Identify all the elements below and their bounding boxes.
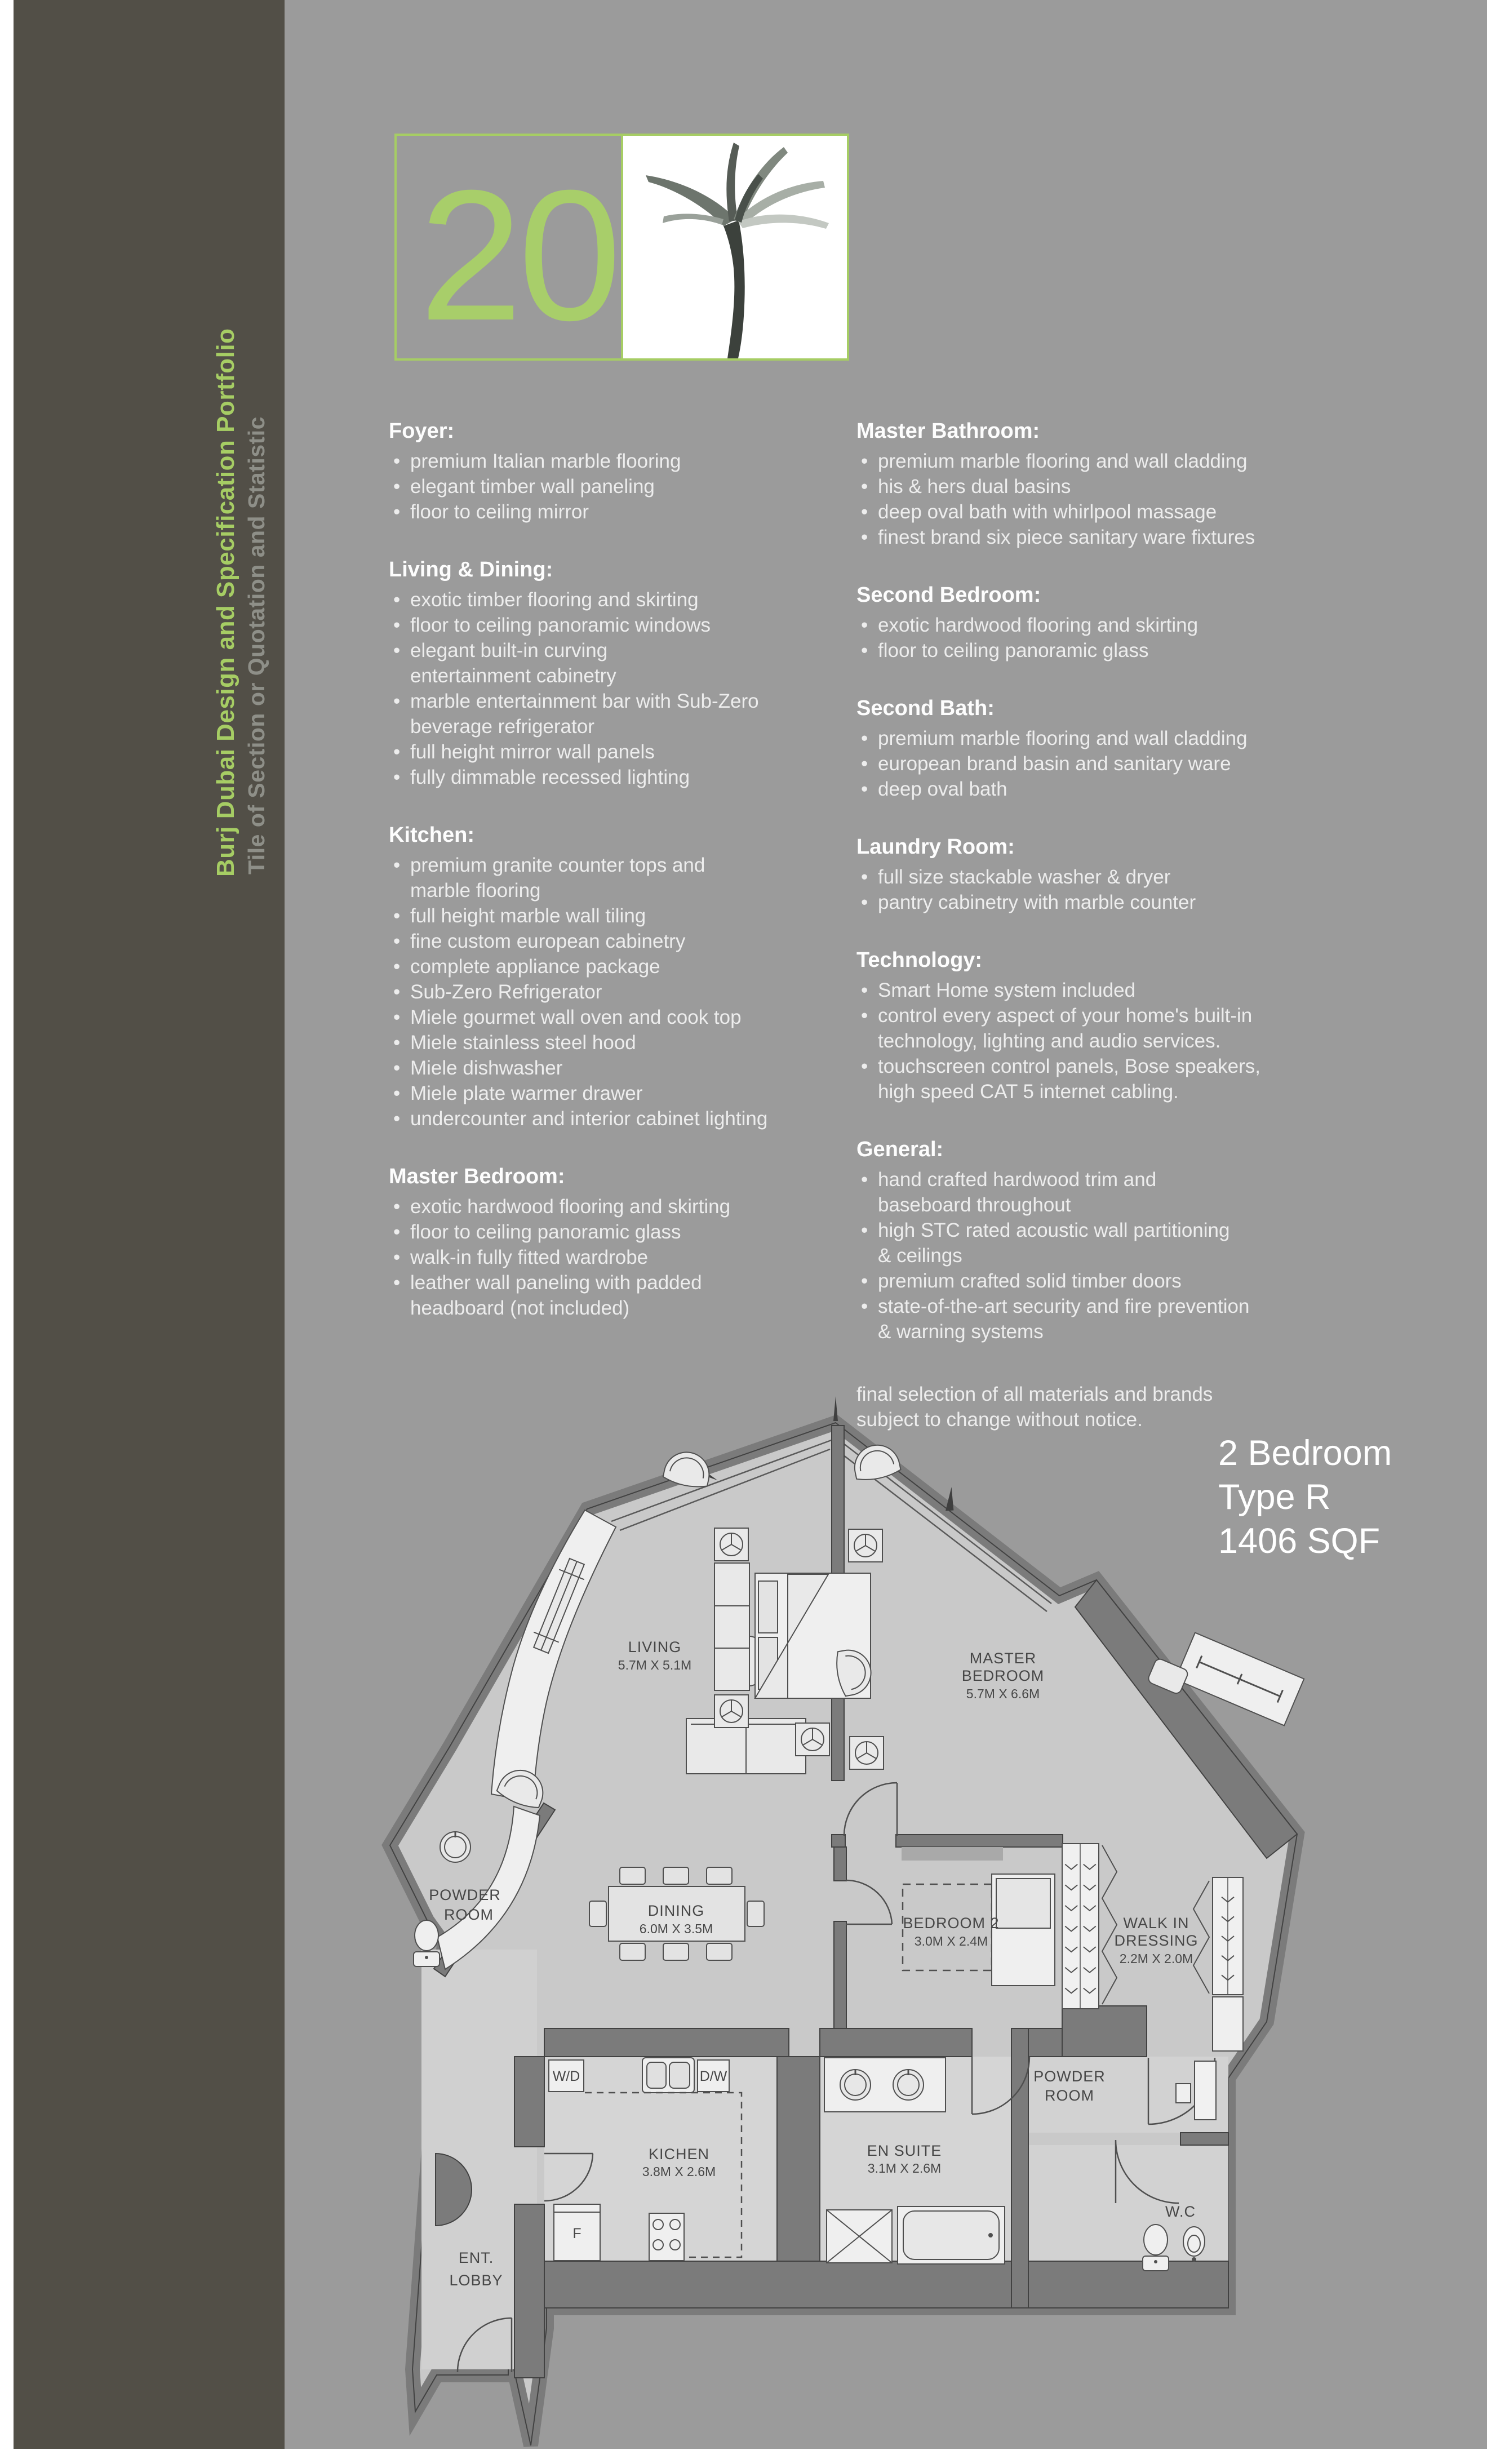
- spec-item: finest brand six piece sanitary ware fix…: [856, 525, 1302, 550]
- section-heading: Technology:: [856, 947, 1302, 973]
- section-laundry-room: Laundry Room: full size stackable washer…: [856, 834, 1302, 915]
- spec-item: fine custom european cabinetry: [389, 929, 834, 954]
- section-second-bath: Second Bath: premium marble flooring and…: [856, 695, 1302, 802]
- label-walkin-dims: 2.2M X 2.0M: [1120, 1951, 1193, 1966]
- section-heading: Laundry Room:: [856, 834, 1302, 860]
- floor-plan: LIVING 5.7M X 5.1M MASTER BEDROOM 5.7M X…: [361, 1386, 1352, 2464]
- label-lobby-1: ENT.: [459, 2249, 494, 2266]
- spec-item: hand crafted hardwood trim and baseboard…: [856, 1167, 1302, 1218]
- spec-item: floor to ceiling mirror: [389, 499, 834, 525]
- label-walkin-2: DRESSING: [1114, 1932, 1198, 1949]
- spec-item: european brand basin and sanitary ware: [856, 751, 1302, 776]
- label-bedroom2-dims: 3.0M X 2.4M: [915, 1934, 988, 1948]
- label-master-1: MASTER: [970, 1650, 1037, 1667]
- label-dining-dims: 6.0M X 3.5M: [640, 1921, 713, 1936]
- label-walkin-1: WALK IN: [1123, 1915, 1189, 1932]
- page-number-cell: 20: [397, 136, 623, 358]
- section-general: General: hand crafted hardwood trim and …: [856, 1136, 1302, 1344]
- spec-item: full height mirror wall panels: [389, 739, 834, 765]
- label-wc: W.C: [1165, 2203, 1196, 2220]
- spec-item: marble entertainment bar with Sub-Zero b…: [389, 689, 834, 739]
- spec-item: undercounter and interior cabinet lighti…: [389, 1106, 834, 1131]
- section-master-bathroom: Master Bathroom: premium marble flooring…: [856, 418, 1302, 550]
- section-heading: Master Bathroom:: [856, 418, 1302, 444]
- spec-item: his & hers dual basins: [856, 474, 1302, 499]
- page-number-box: 20: [394, 134, 849, 361]
- page-number: 20: [419, 162, 617, 348]
- label-powder-right-2: ROOM: [1045, 2087, 1094, 2104]
- spec-item: premium granite counter tops and marble …: [389, 853, 834, 903]
- section-kitchen: Kitchen: premium granite counter tops an…: [389, 822, 834, 1131]
- spec-item: premium Italian marble flooring: [389, 449, 834, 474]
- spec-item: Smart Home system included: [856, 978, 1302, 1003]
- section-heading: Master Bedroom:: [389, 1164, 834, 1189]
- section-master-bedroom: Master Bedroom: exotic hardwood flooring…: [389, 1164, 834, 1321]
- hatched-strip: [902, 1847, 1003, 1861]
- spec-item: full size stackable washer & dryer: [856, 864, 1302, 890]
- section-second-bedroom: Second Bedroom: exotic hardwood flooring…: [856, 582, 1302, 663]
- label-ensuite: EN SUITE: [867, 2142, 942, 2159]
- section-technology: Technology: Smart Home system included c…: [856, 947, 1302, 1104]
- spec-item: elegant built-in curving entertainment c…: [389, 638, 834, 689]
- section-heading: Second Bath:: [856, 695, 1302, 721]
- label-powder-left-1: POWDER: [429, 1886, 501, 1903]
- label-living: LIVING: [628, 1639, 682, 1655]
- flower-photo: [623, 136, 847, 358]
- label-living-dims: 5.7M X 5.1M: [618, 1658, 691, 1672]
- section-heading: Second Bedroom:: [856, 582, 1302, 608]
- label-kitchen: KICHEN: [649, 2146, 709, 2163]
- spec-item: Miele plate warmer drawer: [389, 1081, 834, 1106]
- spec-item: leather wall paneling with padded headbo…: [389, 1270, 834, 1321]
- spec-item: exotic hardwood flooring and skirting: [389, 1194, 834, 1219]
- spec-item: Sub-Zero Refrigerator: [389, 979, 834, 1005]
- label-lobby-2: LOBBY: [449, 2272, 503, 2289]
- label-powder-right-1: POWDER: [1033, 2068, 1106, 2085]
- section-heading: Living & Dining:: [389, 557, 834, 583]
- spec-item: deep oval bath with whirlpool massage: [856, 499, 1302, 525]
- label-bedroom2: BEDROOM 2: [903, 1915, 999, 1932]
- spec-item: walk-in fully fitted wardrobe: [389, 1245, 834, 1270]
- spec-item: deep oval bath: [856, 776, 1302, 802]
- spec-item: elegant timber wall paneling: [389, 474, 834, 499]
- sidebar-title: Burj Dubai Design and Specification Port…: [212, 328, 240, 877]
- spec-item: premium crafted solid timber doors: [856, 1268, 1302, 1294]
- spec-item: premium marble flooring and wall claddin…: [856, 726, 1302, 751]
- spec-item: floor to ceiling panoramic glass: [389, 1219, 834, 1245]
- spec-item: floor to ceiling panoramic glass: [856, 638, 1302, 663]
- spec-column-right: Master Bathroom: premium marble flooring…: [856, 418, 1302, 1432]
- section-foyer: Foyer: premium Italian marble flooring e…: [389, 418, 834, 525]
- spec-item: pantry cabinetry with marble counter: [856, 890, 1302, 915]
- sidebar-subtitle: Tile of Section or Quotation and Statist…: [243, 416, 270, 874]
- spec-item: exotic hardwood flooring and skirting: [856, 612, 1302, 638]
- spec-column-left: Foyer: premium Italian marble flooring e…: [389, 418, 834, 1321]
- label-dining: DINING: [648, 1902, 705, 1919]
- label-fridge: F: [572, 2226, 581, 2241]
- spec-item: high STC rated acoustic wall partitionin…: [856, 1218, 1302, 1268]
- spec-item: touchscreen control panels, Bose speaker…: [856, 1054, 1302, 1104]
- spec-item: exotic timber flooring and skirting: [389, 587, 834, 612]
- spec-item: state-of-the-art security and fire preve…: [856, 1294, 1302, 1344]
- label-master-dims: 5.7M X 6.6M: [966, 1686, 1040, 1701]
- label-powder-left-2: ROOM: [444, 1906, 494, 1923]
- spec-item: fully dimmable recessed lighting: [389, 765, 834, 790]
- label-dishwasher: D/W: [700, 2068, 727, 2084]
- label-master-2: BEDROOM: [962, 1667, 1045, 1684]
- section-living-dining: Living & Dining: exotic timber flooring …: [389, 557, 834, 790]
- label-kitchen-dims: 3.8M X 2.6M: [642, 2164, 716, 2179]
- section-heading: Kitchen:: [389, 822, 834, 848]
- spec-item: Miele dishwasher: [389, 1055, 834, 1081]
- spec-item: floor to ceiling panoramic windows: [389, 612, 834, 638]
- label-washer-dryer: W/D: [553, 2068, 580, 2084]
- sidebar: Burj Dubai Design and Specification Port…: [14, 0, 285, 2449]
- spec-item: premium marble flooring and wall claddin…: [856, 449, 1302, 474]
- spec-item: control every aspect of your home's buil…: [856, 1003, 1302, 1054]
- spec-item: Miele stainless steel hood: [389, 1030, 834, 1055]
- spec-item: Miele gourmet wall oven and cook top: [389, 1005, 834, 1030]
- bird-of-paradise-illustration: [623, 136, 847, 358]
- section-heading: General:: [856, 1136, 1302, 1162]
- spec-item: full height marble wall tiling: [389, 903, 834, 929]
- brochure-page: Burj Dubai Design and Specification Port…: [0, 0, 1487, 2464]
- section-heading: Foyer:: [389, 418, 834, 444]
- spec-item: complete appliance package: [389, 954, 834, 979]
- label-ensuite-dims: 3.1M X 2.6M: [868, 2161, 941, 2176]
